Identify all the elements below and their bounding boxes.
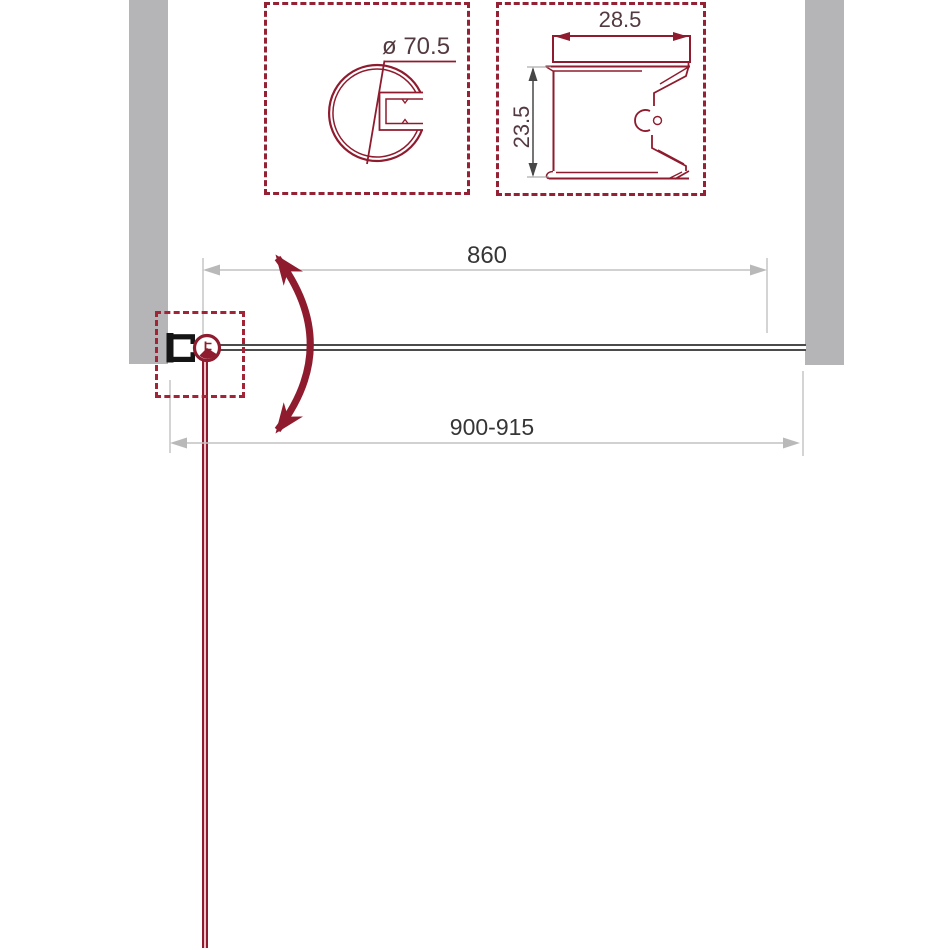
profile-width-label: 28.5 bbox=[560, 7, 680, 33]
diameter-label: ø 70.5 bbox=[382, 33, 450, 61]
round-profile-detail-box bbox=[264, 2, 470, 195]
glass-panel-line bbox=[219, 344, 806, 351]
open-door-line bbox=[202, 360, 208, 948]
glass-width-label: 860 bbox=[437, 242, 537, 270]
overall-width-label: 900-915 bbox=[437, 414, 547, 441]
left-wall bbox=[129, 0, 168, 364]
right-wall bbox=[805, 0, 844, 365]
pivot-detail-callout-box bbox=[155, 311, 245, 398]
profile-height-label: 23.5 bbox=[509, 97, 533, 157]
